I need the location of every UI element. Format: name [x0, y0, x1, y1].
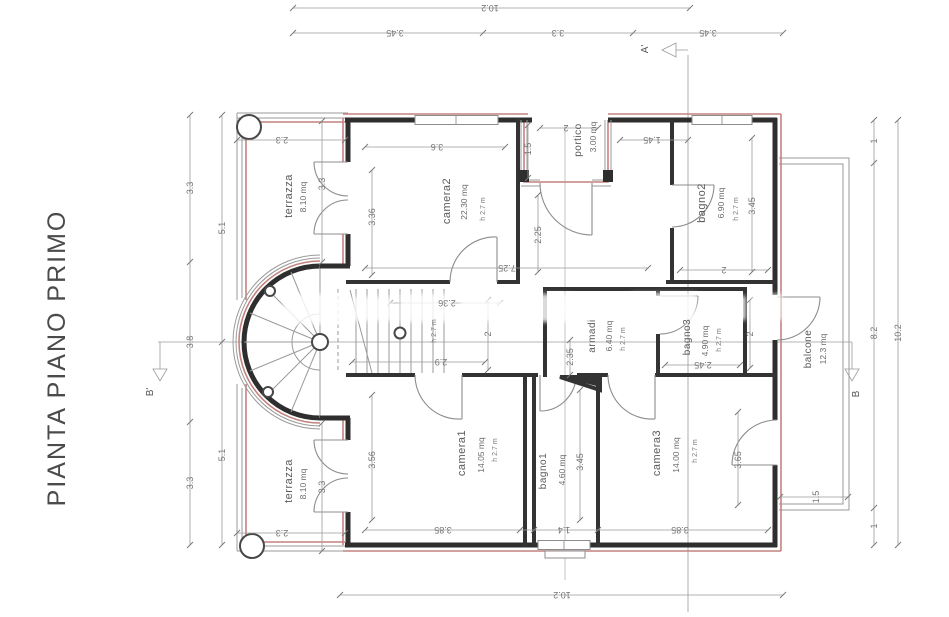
dim-corr-top: 2.36	[438, 298, 456, 308]
column-top-left	[237, 115, 261, 139]
dim-armadi-w: 2.35	[565, 348, 575, 366]
dim-hall-w: 7.25	[498, 263, 516, 273]
dim-terr-top-w: 2.3	[276, 135, 289, 145]
room-terrazza-bottom-area: 8.10 mq	[298, 468, 308, 499]
window-sill	[545, 551, 585, 558]
room-portico-name: portico	[573, 123, 584, 157]
dim-portico-side: 1.45	[643, 135, 661, 145]
dim-left-in-top: 5.1	[217, 222, 227, 235]
room-camera1-area: 14.05 mq	[476, 437, 486, 473]
room-armadi-height: h 2.7 m	[620, 327, 627, 351]
room-corridoio-height: h 2.7 m	[431, 319, 438, 343]
door-camera3	[608, 375, 655, 419]
dim-hall-h: 2.25	[533, 226, 543, 244]
room-camera2-height: h 2.7 m	[480, 197, 487, 221]
room-terrazza-bottom-name: terrazza	[283, 459, 295, 503]
handrail-post	[263, 387, 273, 397]
room-camera3-area: 14.00 mq	[671, 437, 681, 473]
dim-left-in-bot: 5.1	[217, 449, 227, 462]
dim-top-total: 10.2	[481, 3, 499, 13]
dim-camera3-w: 3.85	[671, 525, 689, 535]
dim-camera1-h: 3.56	[367, 451, 377, 469]
room-balcone-name: balcone	[803, 330, 814, 369]
dim-top-right: 3.45	[699, 28, 717, 38]
room-camera1-height: h 2.7 m	[492, 438, 499, 462]
dim-terr-bot-w: 2.3	[276, 528, 289, 538]
dim-corr-bot: 2.9	[435, 357, 448, 367]
stair-center-post	[312, 334, 328, 350]
dim-right-top: 1	[869, 138, 879, 143]
dim-bottom-total: 10.2	[553, 590, 571, 600]
dim-camera1-w: 3.85	[434, 525, 452, 535]
section-arrow-b	[845, 369, 859, 381]
section-arrow-b-prime	[153, 369, 167, 381]
dim-right-bot: 1	[869, 523, 879, 528]
dim-left-out-mid: 3.8	[185, 336, 195, 349]
dim-bagno2-h: 3.45	[747, 197, 757, 215]
room-bagno2-name: bagno2	[696, 183, 708, 223]
room-bagno2-height: h 2.7 m	[733, 197, 740, 221]
room-bagno2-area: 6.90 mq	[716, 187, 726, 218]
dim-left-out-bot: 3.3	[185, 477, 195, 490]
room-terrazza-top-area: 8.10 mq	[298, 181, 308, 212]
dim-strip-w: 2	[745, 331, 755, 336]
dim-balcone-w: 1.5	[811, 491, 821, 504]
room-camera2-area: 22.30 mq	[459, 184, 469, 220]
sliding-panel-symbol	[560, 377, 600, 390]
room-terrazza-top-name: terrazza	[283, 174, 295, 218]
stair-post	[395, 328, 406, 339]
room-camera1-name: camera1	[456, 430, 468, 476]
french-door-terrazza-top	[314, 162, 348, 234]
room-bagno1-area: 4.60 mq	[557, 454, 567, 485]
room-camera3-height: h 2.7 m	[692, 439, 699, 463]
dim-left-out-top: 3.3	[185, 182, 195, 195]
room-bagno3-area: 4.90 mq	[700, 325, 710, 356]
dim-bagno3-w: 2.45	[694, 360, 712, 370]
dim-corr-r: 2	[483, 331, 493, 336]
door-camera2	[450, 237, 497, 282]
dim-right-mid: 8.2	[869, 327, 879, 340]
room-armadi-area: 6.40 mq	[604, 320, 614, 351]
dim-camera2-h: 3.36	[367, 208, 377, 226]
dim-camera2-w: 3.6	[431, 142, 444, 152]
door-camera1	[415, 375, 462, 419]
dim-right-total: 10.2	[893, 324, 903, 342]
room-bagno1-name: bagno1	[538, 453, 549, 489]
floor-plan-canvas: PIANTA PIANO PRIMO terrazza 8.10 mq came…	[0, 0, 949, 617]
section-label-a-prime: A'	[640, 45, 651, 54]
dim-portico-d: 1.5	[523, 143, 533, 156]
dim-camera3-h: 3.65	[733, 451, 743, 469]
room-camera2-name: camera2	[441, 178, 453, 224]
section-label-b-prime: B'	[145, 388, 156, 397]
dim-terr-bot-h: 3.3	[317, 481, 327, 494]
room-portico-area: 3.00 mq	[588, 121, 598, 152]
dim-top-mid: 3.3	[552, 28, 565, 38]
plan-title: PIANTA PIANO PRIMO	[43, 210, 71, 507]
dim-terr-top-h: 3.3	[317, 178, 327, 191]
room-balcone-area: 12.3 mq	[818, 333, 828, 364]
dim-bagno2-w: 2	[721, 265, 726, 275]
watermark	[283, 293, 782, 324]
handrail-post	[265, 286, 275, 296]
french-door-terrazza-bottom	[314, 440, 348, 512]
room-bagno3-height: h 2.7 m	[716, 328, 723, 352]
floor-plan-page: PIANTA PIANO PRIMO terrazza 8.10 mq came…	[0, 0, 949, 617]
door-entry	[540, 183, 592, 235]
balcone-outline	[779, 158, 849, 510]
column-bottom-left	[240, 534, 264, 558]
dim-portico-w: 2	[563, 123, 568, 133]
portico-post	[519, 170, 529, 182]
room-bagno3-name: bagno3	[682, 319, 693, 355]
dim-bagno1-h: 3.45	[575, 453, 585, 471]
dim-bagno1-w: 1.4	[558, 525, 571, 535]
room-camera3-name: camera3	[651, 430, 663, 476]
dim-top-left: 3.45	[386, 28, 404, 38]
section-label-b: B	[851, 390, 862, 397]
section-arrow-a	[662, 43, 676, 57]
room-armadi-name: armadi	[587, 319, 598, 353]
portico-post	[603, 170, 613, 182]
